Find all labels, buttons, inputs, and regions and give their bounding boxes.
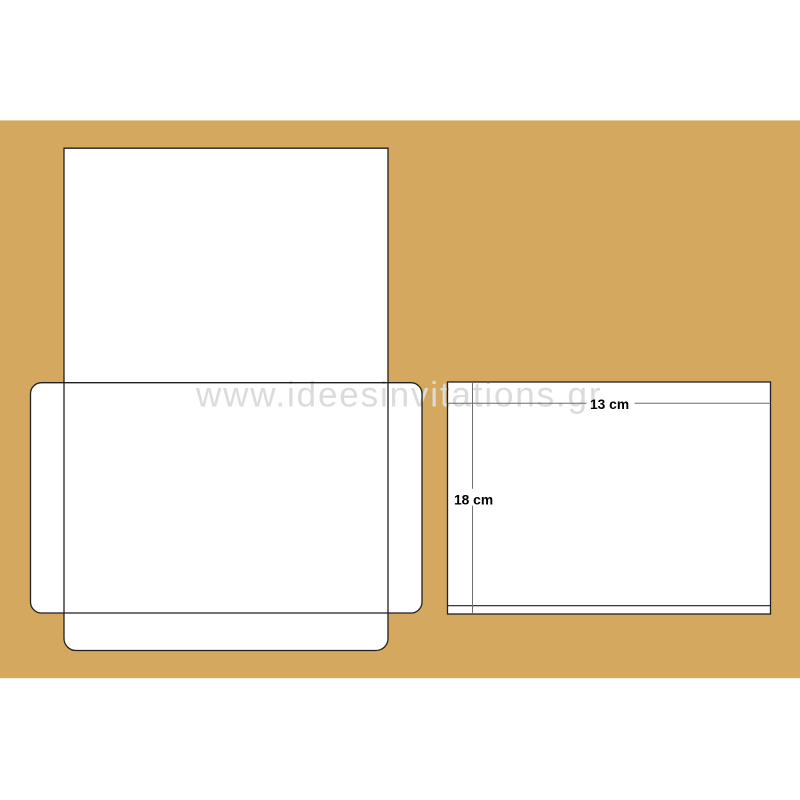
- svg-text:13 cm: 13 cm: [590, 397, 629, 412]
- svg-text:18 cm: 18 cm: [454, 493, 493, 508]
